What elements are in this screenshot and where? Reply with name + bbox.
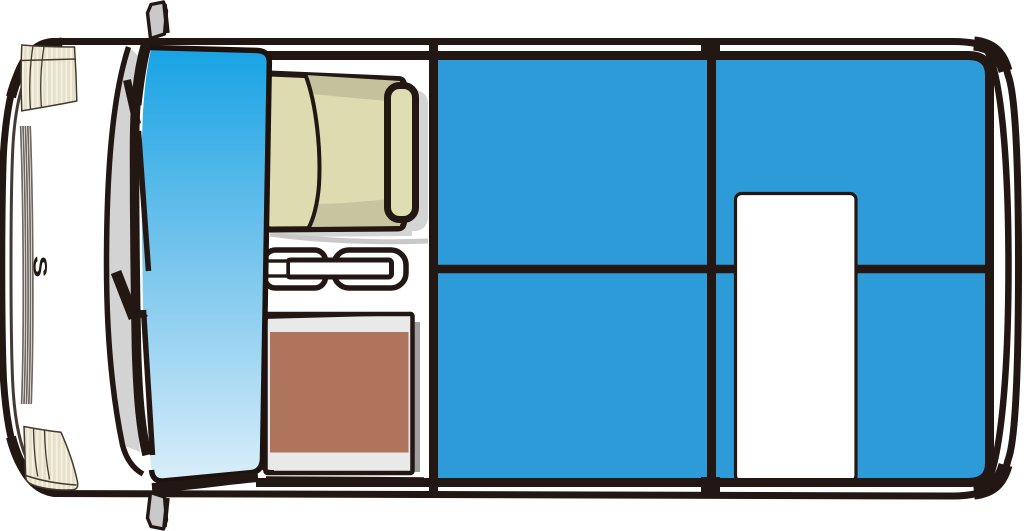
svg-text:S: S [29, 256, 51, 278]
